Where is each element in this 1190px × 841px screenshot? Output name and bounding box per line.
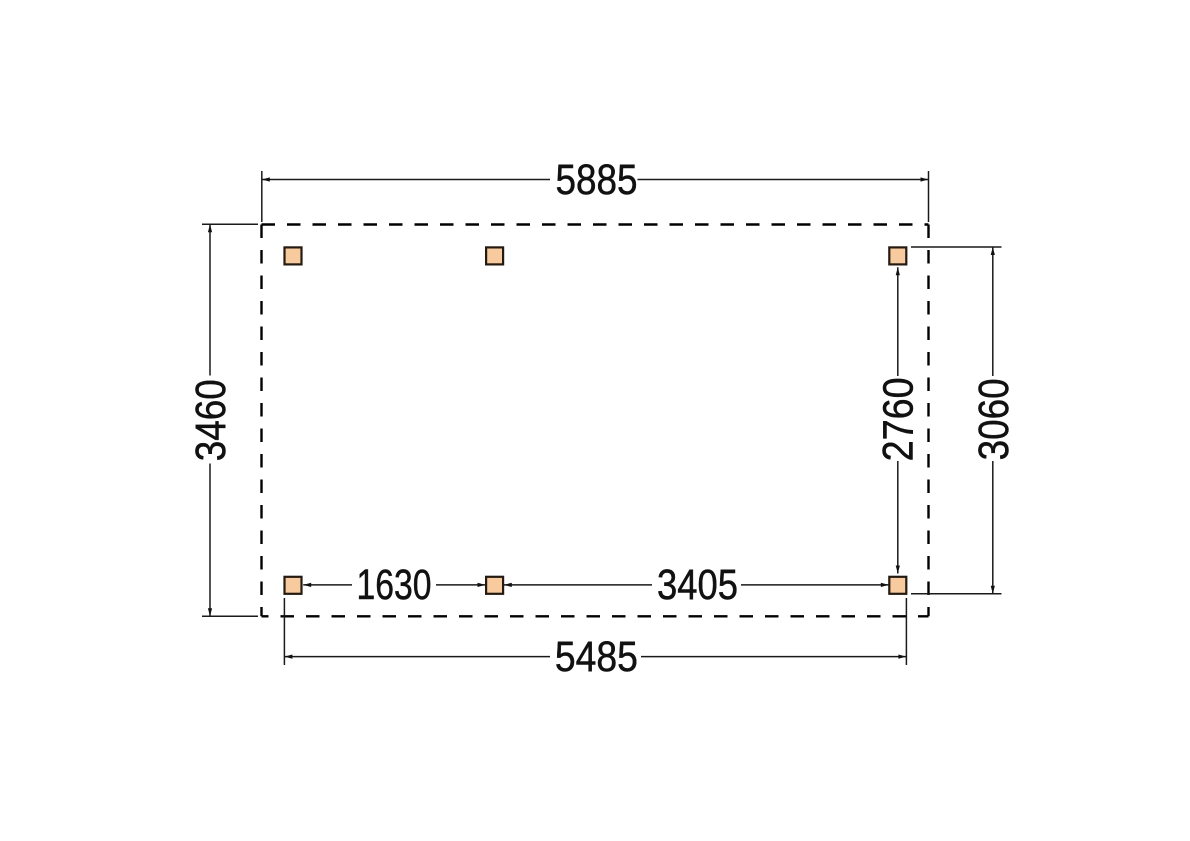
svg-text:1630: 1630 xyxy=(357,561,432,609)
svg-text:3405: 3405 xyxy=(657,561,738,609)
svg-text:3460: 3460 xyxy=(187,379,235,461)
svg-text:2760: 2760 xyxy=(874,377,922,461)
svg-text:5885: 5885 xyxy=(556,156,638,204)
svg-text:3060: 3060 xyxy=(970,378,1018,460)
svg-text:5485: 5485 xyxy=(555,633,638,681)
